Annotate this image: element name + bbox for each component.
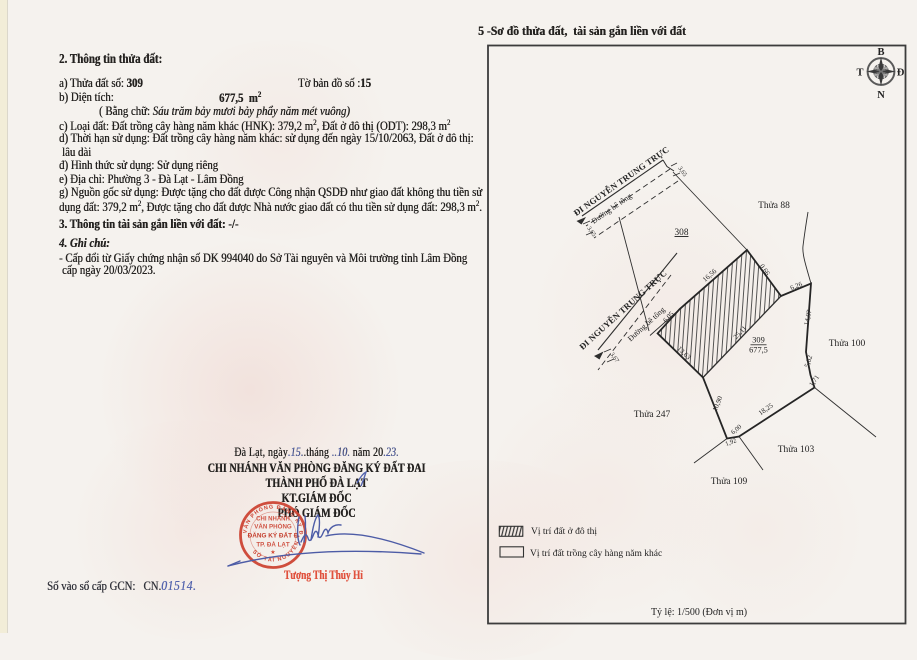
svg-text:3,65: 3,65 (676, 165, 688, 178)
svg-text:Thửa 247: Thửa 247 (634, 410, 671, 420)
svg-text:3,65: 3,65 (585, 225, 597, 238)
svg-text:3,67: 3,67 (608, 351, 620, 364)
svg-text:10,90: 10,90 (711, 394, 725, 412)
svg-text:Vị trí đất trồng cây hàng năm: Vị trí đất trồng cây hàng năm khác (530, 548, 662, 559)
svg-text:VĂN PHÒNG ĐĂNG KÝ ĐẤT ĐAI TỈNH: VĂN PHÒNG ĐĂNG KÝ ĐẤT ĐAI TỈNH LÂM ĐỒNG (0, 0, 304, 536)
svg-text:1,71: 1,71 (808, 373, 822, 388)
svg-text:TP. ĐÀ LẠT: TP. ĐÀ LẠT (256, 542, 289, 549)
svg-text:★: ★ (270, 549, 275, 556)
svg-text:6,26: 6,26 (789, 280, 804, 292)
svg-text:677,5: 677,5 (749, 346, 768, 355)
svg-text:Thửa 103: Thửa 103 (778, 445, 815, 455)
svg-text:Thửa 88: Thửa 88 (758, 201, 790, 211)
svg-text:Tỷ lệ: 1/500 (Đơn vị m): Tỷ lệ: 1/500 (Đơn vị m) (651, 607, 747, 618)
svg-text:SỞ TÀI NGUYÊN VÀ MT: SỞ TÀI NGUYÊN VÀ MT (0, 0, 302, 564)
svg-text:B: B (877, 47, 884, 58)
svg-text:5,62: 5,62 (803, 354, 815, 369)
svg-text:N: N (877, 90, 885, 101)
svg-text:CHI NHÁNH: CHI NHÁNH (256, 516, 290, 523)
svg-text:309: 309 (752, 336, 764, 345)
svg-text:Vị trí đất ở đô thị: Vị trí đất ở đô thị (531, 526, 597, 537)
svg-text:Đ: Đ (897, 68, 905, 79)
svg-text:VĂN PHÒNG: VĂN PHÒNG (254, 523, 292, 531)
svg-text:308: 308 (675, 228, 689, 238)
svg-text:Thửa 109: Thửa 109 (711, 477, 748, 487)
svg-text:ĐĂNG KÝ ĐẤT Đ: ĐĂNG KÝ ĐẤT Đ (248, 530, 299, 540)
svg-text:T: T (856, 68, 863, 79)
svg-text:14,07: 14,07 (802, 309, 813, 327)
svg-text:Thửa 100: Thửa 100 (829, 339, 866, 349)
